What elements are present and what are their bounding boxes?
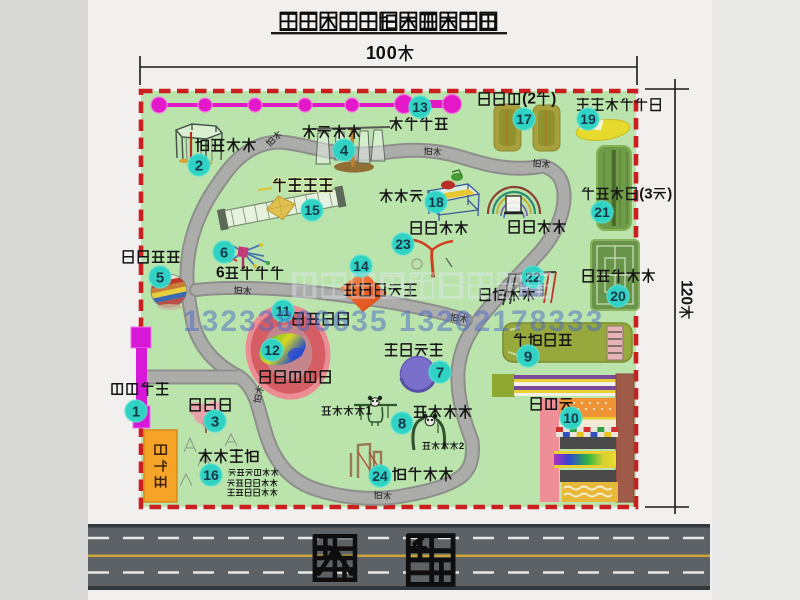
svg-text:15: 15 (304, 202, 320, 218)
svg-text:): ) (667, 185, 672, 202)
svg-text:17: 17 (516, 111, 532, 127)
svg-text:1: 1 (132, 403, 140, 420)
svg-text:19: 19 (580, 111, 596, 127)
svg-text:20: 20 (610, 288, 626, 304)
svg-text:10: 10 (563, 410, 579, 426)
svg-text:2: 2 (527, 91, 536, 108)
svg-text:21: 21 (594, 204, 610, 220)
svg-text:9: 9 (524, 348, 532, 365)
svg-text:24: 24 (372, 468, 388, 484)
svg-text:13233806635 13202178333: 13233806635 13202178333 (183, 305, 604, 338)
svg-text:2: 2 (195, 157, 203, 174)
svg-text:3: 3 (644, 185, 652, 202)
svg-text:0: 0 (376, 43, 386, 63)
svg-text:23: 23 (395, 236, 411, 252)
svg-text:7: 7 (436, 364, 444, 381)
svg-text:3: 3 (211, 413, 219, 430)
svg-text:4: 4 (340, 142, 349, 159)
svg-text:13: 13 (412, 99, 428, 115)
svg-text:0: 0 (677, 296, 694, 305)
svg-text:6: 6 (216, 265, 225, 282)
svg-text:14: 14 (353, 258, 369, 274)
svg-text:5: 5 (156, 269, 164, 286)
svg-text:16: 16 (203, 467, 219, 483)
svg-text:2: 2 (677, 288, 694, 297)
svg-text:12: 12 (264, 342, 280, 358)
svg-text:0: 0 (387, 43, 397, 63)
svg-text:2: 2 (459, 441, 464, 452)
svg-text:): ) (551, 91, 556, 108)
svg-text:1: 1 (366, 405, 373, 417)
svg-text:6: 6 (220, 244, 228, 261)
svg-text:18: 18 (428, 194, 444, 210)
svg-text:8: 8 (398, 415, 406, 432)
svg-text:1: 1 (366, 43, 376, 63)
